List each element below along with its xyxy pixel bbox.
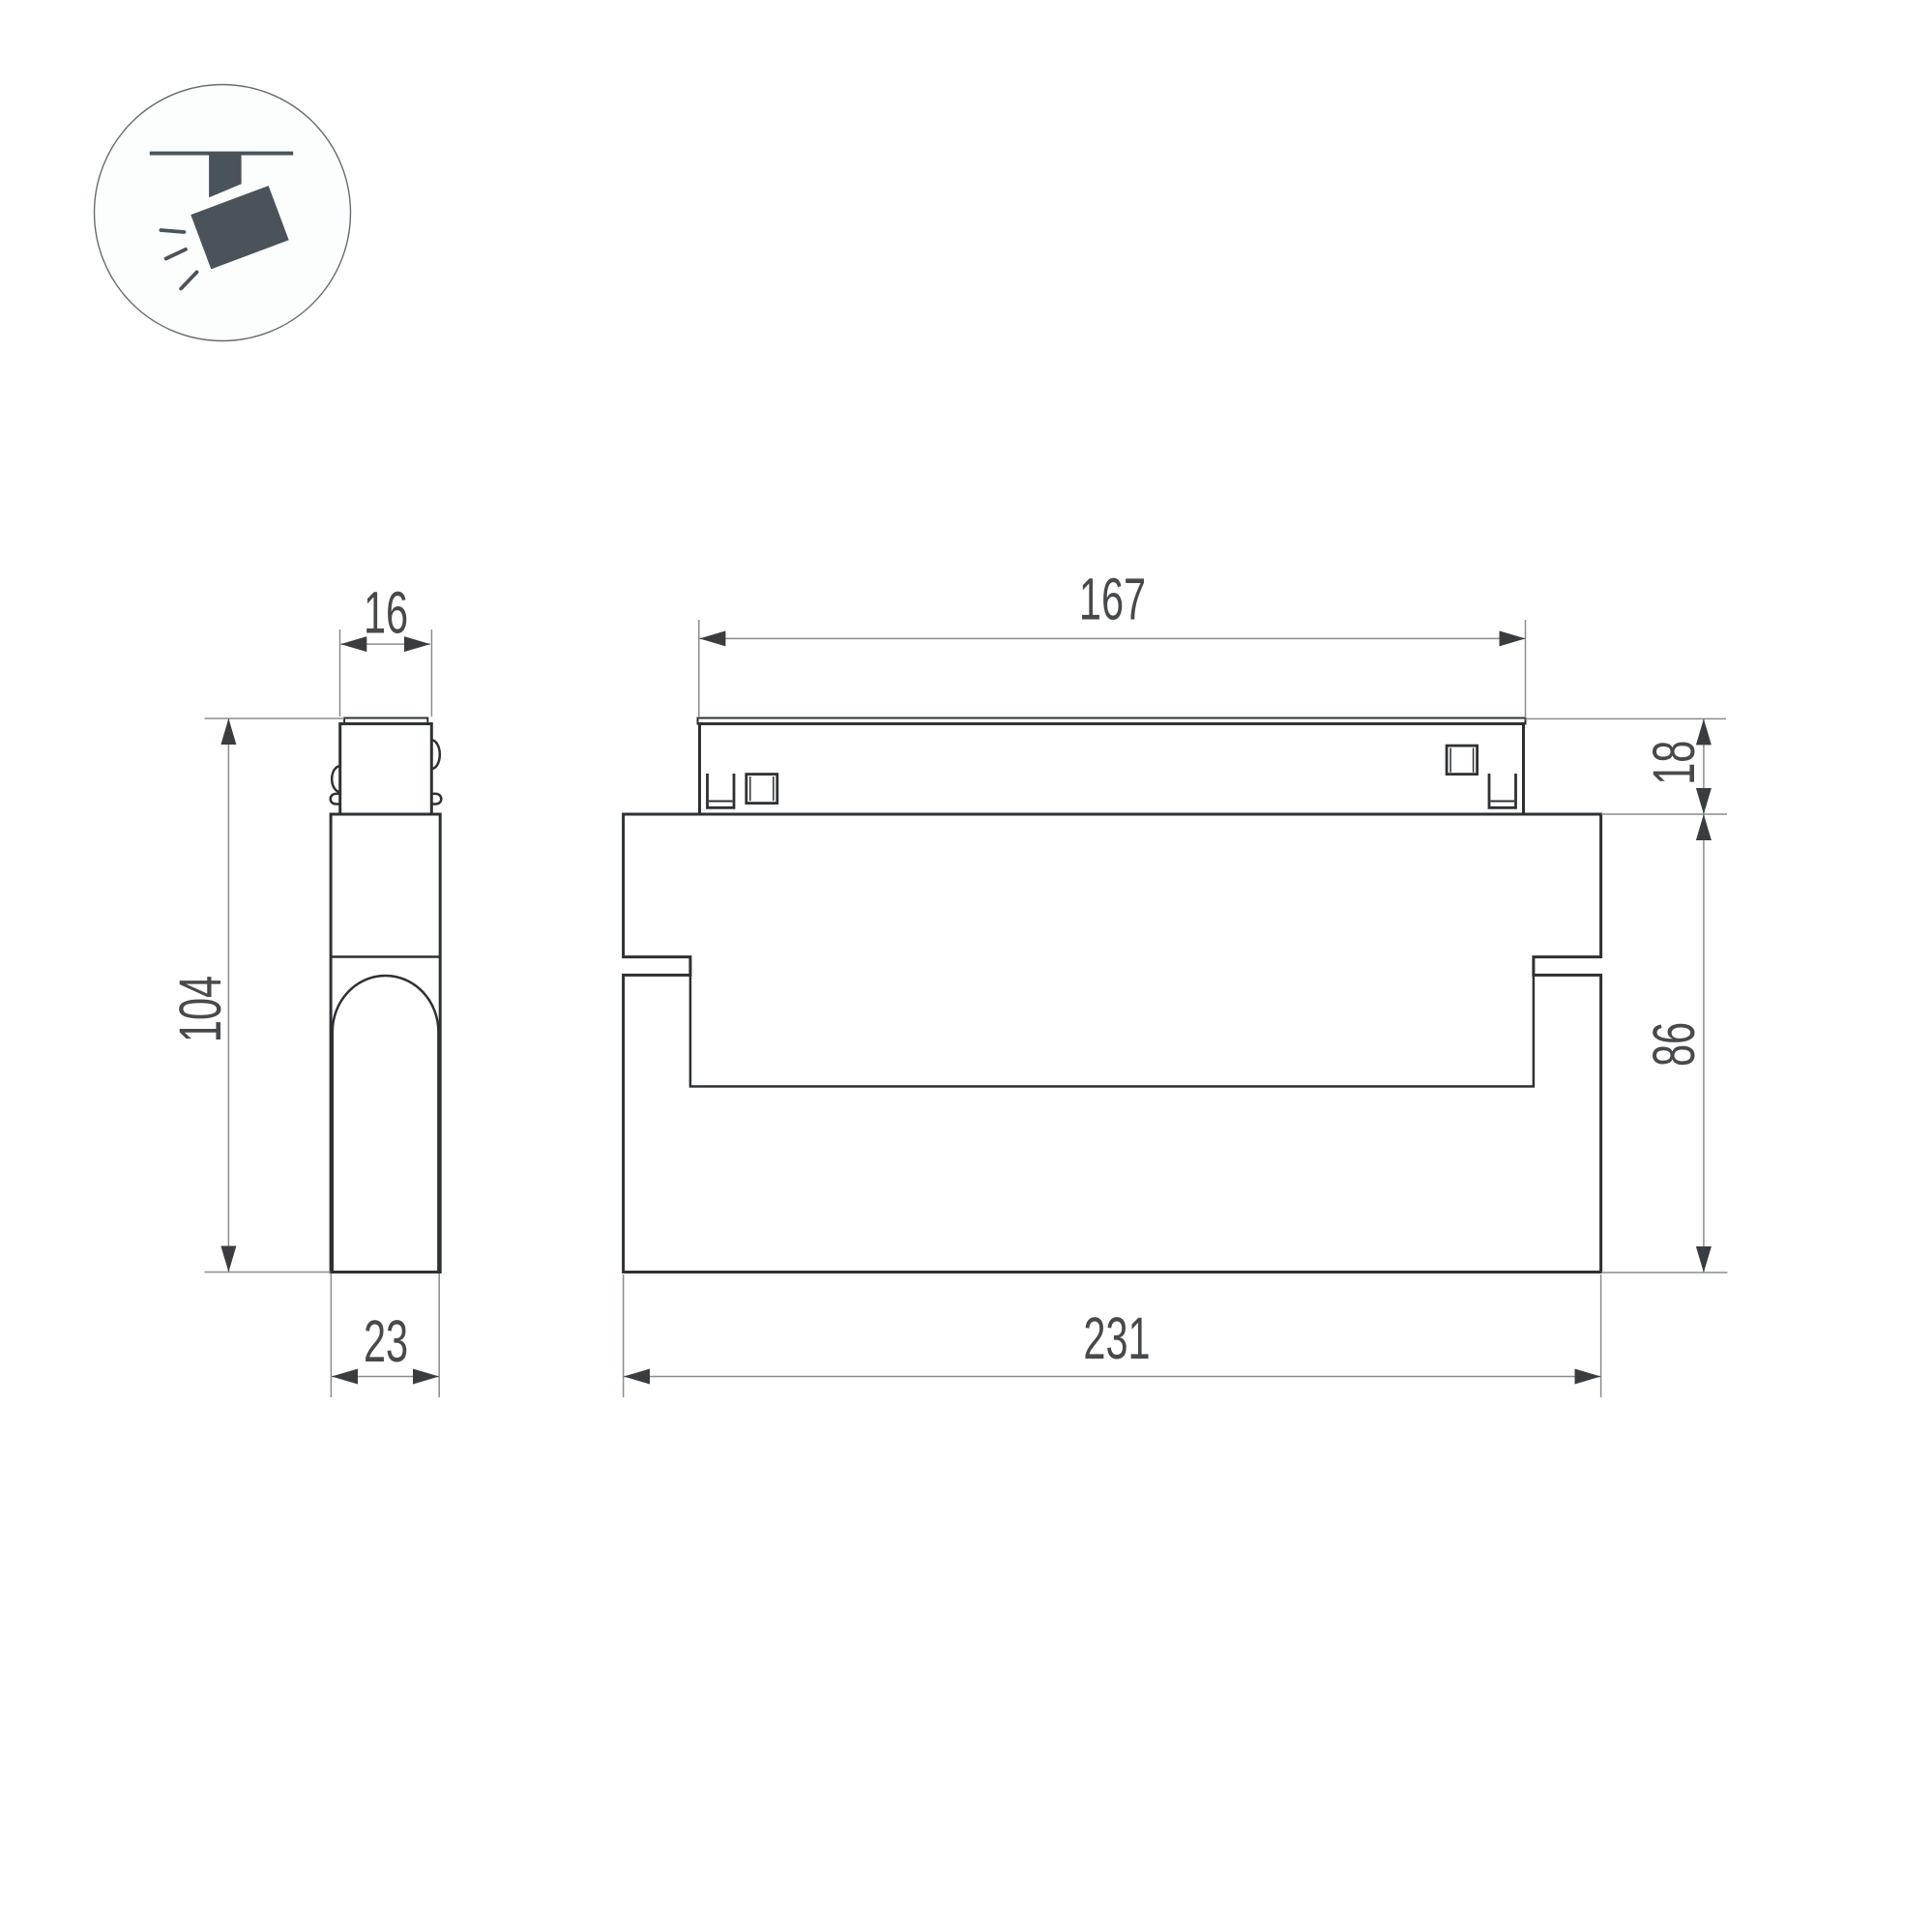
svg-text:86: 86 (1642, 1022, 1708, 1067)
svg-text:18: 18 (1642, 741, 1708, 785)
svg-text:104: 104 (168, 976, 234, 1042)
svg-text:16: 16 (364, 581, 408, 647)
svg-text:23: 23 (364, 1309, 408, 1375)
svg-text:167: 167 (1079, 568, 1146, 633)
svg-text:231: 231 (1083, 1306, 1150, 1372)
